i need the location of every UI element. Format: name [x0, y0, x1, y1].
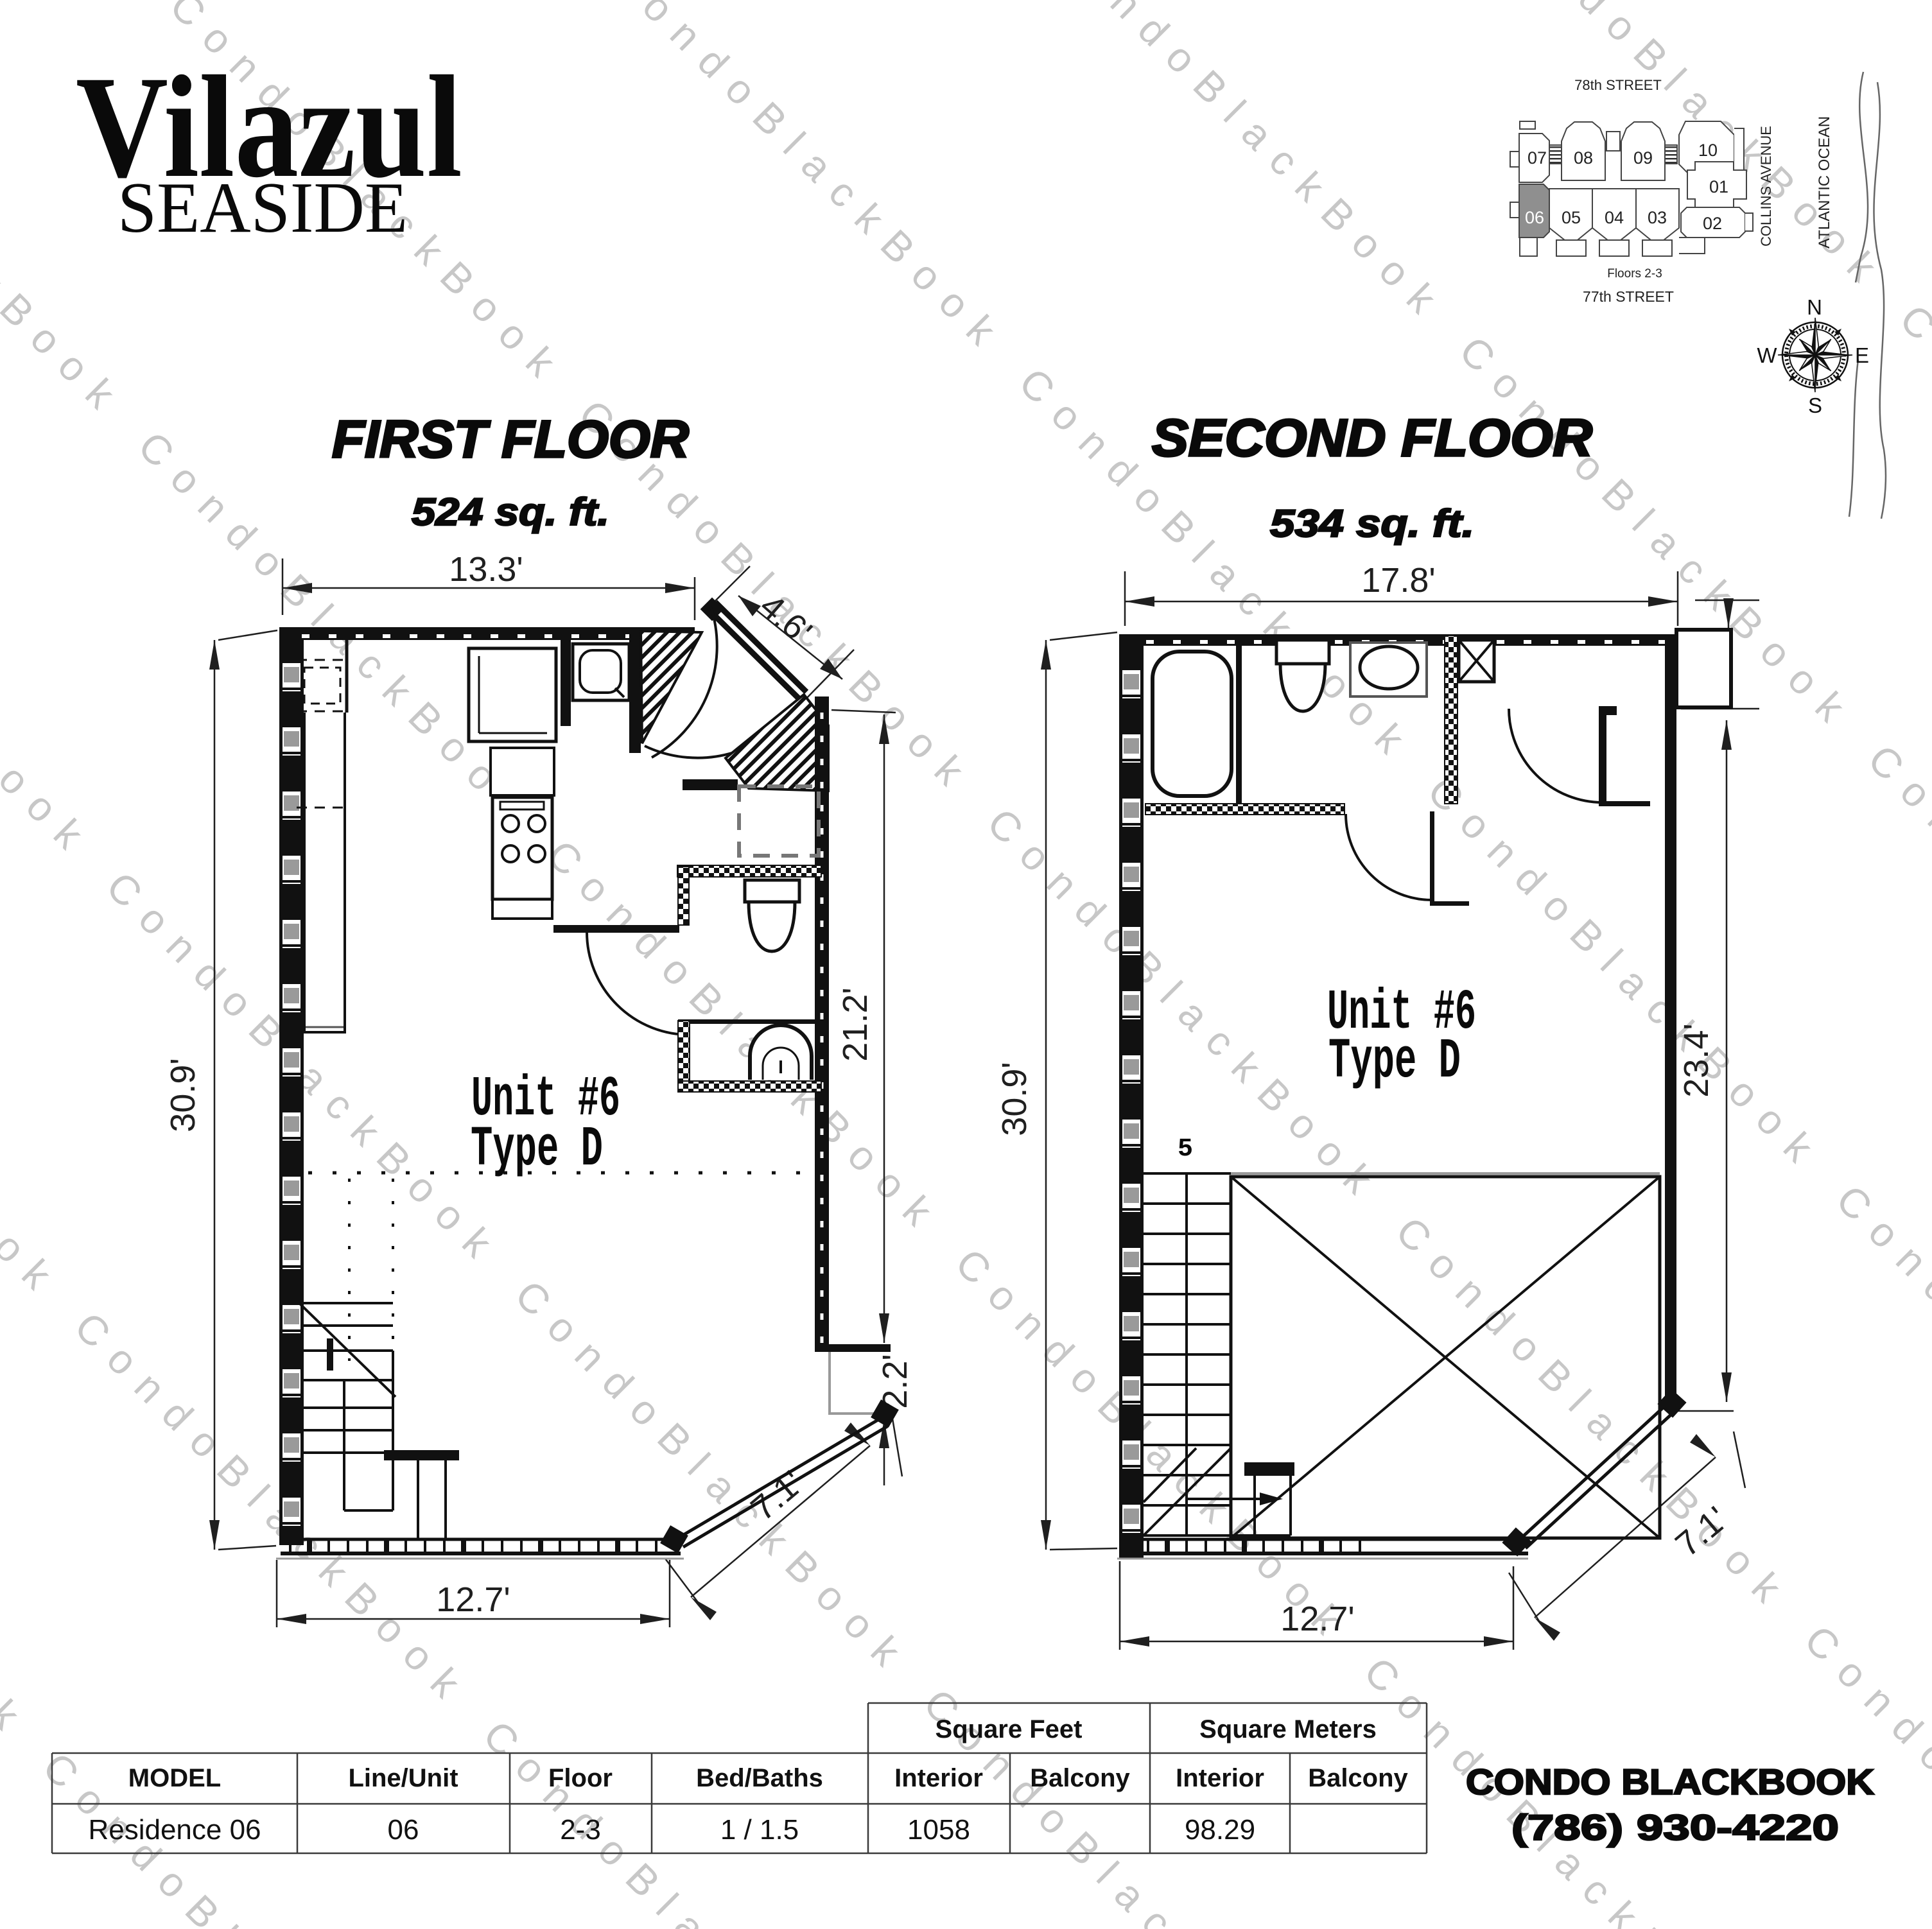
- svg-text:21.2': 21.2': [836, 987, 875, 1061]
- svg-text:01: 01: [1709, 177, 1728, 196]
- svg-text:30.9': 30.9': [164, 1058, 202, 1132]
- svg-text:12.7': 12.7': [436, 1580, 510, 1619]
- svg-text:10: 10: [1698, 141, 1718, 160]
- svg-text:SECOND FLOOR: SECOND FLOOR: [1152, 409, 1592, 467]
- svg-text:17.8': 17.8': [1361, 561, 1435, 600]
- svg-text:06: 06: [388, 1814, 419, 1846]
- svg-text:30.9': 30.9': [995, 1062, 1034, 1136]
- svg-text:Line/Unit: Line/Unit: [348, 1764, 458, 1792]
- svg-text:E: E: [1855, 343, 1869, 367]
- svg-text:1 / 1.5: 1 / 1.5: [720, 1814, 799, 1846]
- svg-text:S: S: [1808, 394, 1822, 417]
- svg-text:MODEL: MODEL: [128, 1764, 221, 1792]
- svg-text:Type D: Type D: [1328, 1030, 1461, 1094]
- svg-text:2-3: 2-3: [560, 1814, 601, 1846]
- svg-text:98.29: 98.29: [1185, 1814, 1255, 1846]
- svg-text:04: 04: [1605, 208, 1624, 227]
- svg-text:CONDO BLACKBOOK: CONDO BLACKBOOK: [1466, 1761, 1874, 1802]
- svg-text:06: 06: [1525, 208, 1544, 227]
- svg-text:Interior: Interior: [1176, 1764, 1264, 1792]
- svg-text:Balcony: Balcony: [1308, 1764, 1408, 1792]
- svg-text:78th STREET: 78th STREET: [1574, 77, 1662, 93]
- svg-text:5: 5: [1178, 1135, 1193, 1164]
- svg-text:23.4': 23.4': [1677, 1023, 1716, 1097]
- svg-text:1058: 1058: [907, 1814, 970, 1846]
- svg-text:05: 05: [1562, 208, 1581, 227]
- svg-text:09: 09: [1633, 148, 1653, 168]
- svg-text:07: 07: [1527, 148, 1547, 168]
- svg-text:N: N: [1807, 295, 1822, 319]
- svg-text:Floors 2-3: Floors 2-3: [1607, 267, 1662, 281]
- svg-text:13.3': 13.3': [449, 550, 523, 589]
- svg-text:08: 08: [1574, 148, 1593, 168]
- svg-text:12.7': 12.7': [1280, 1600, 1354, 1638]
- svg-text:ATLANTIC OCEAN: ATLANTIC OCEAN: [1816, 116, 1833, 248]
- svg-text:SEASIDE: SEASIDE: [117, 168, 408, 248]
- svg-text:Type D: Type D: [471, 1118, 603, 1182]
- svg-text:Floor: Floor: [548, 1764, 613, 1792]
- svg-text:03: 03: [1648, 208, 1667, 227]
- svg-text:Residence 06: Residence 06: [88, 1814, 261, 1846]
- svg-text:Interior: Interior: [894, 1764, 983, 1792]
- svg-text:W: W: [1757, 343, 1777, 367]
- svg-text:Bed/Baths: Bed/Baths: [696, 1764, 823, 1792]
- svg-text:77th STREET: 77th STREET: [1583, 288, 1674, 305]
- svg-text:Balcony: Balcony: [1030, 1764, 1130, 1792]
- svg-text:Square Meters: Square Meters: [1199, 1715, 1377, 1743]
- svg-text:(786) 930-4220: (786) 930-4220: [1511, 1807, 1839, 1847]
- svg-text:02: 02: [1703, 214, 1722, 233]
- svg-text:COLLINS AVENUE: COLLINS AVENUE: [1758, 126, 1774, 247]
- svg-text:FIRST FLOOR: FIRST FLOOR: [332, 410, 689, 469]
- svg-text:524 sq. ft.: 524 sq. ft.: [412, 490, 609, 533]
- svg-text:534 sq. ft.: 534 sq. ft.: [1270, 502, 1474, 545]
- svg-text:Square Feet: Square Feet: [936, 1715, 1083, 1743]
